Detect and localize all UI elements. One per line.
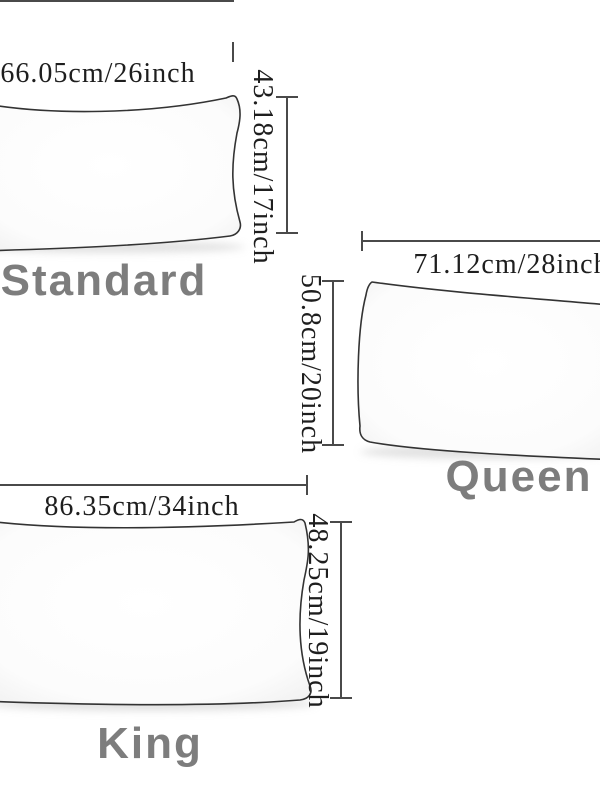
king-size-label: King: [97, 719, 203, 769]
standard-height-line-top-tick: [276, 96, 298, 98]
standard-width-line: [0, 0, 234, 2]
pillow-size-chart: 66.05cm/26inch 43.18cm/17inch Standard 7…: [0, 0, 600, 800]
queen-pillow-shape: [358, 282, 600, 460]
king-height-line-top-tick: [330, 521, 352, 523]
queen-width-line-start-tick: [361, 231, 363, 251]
standard-height-text: 43.18cm/17inch: [246, 69, 278, 264]
king-height-text: 48.25cm/19inch: [301, 513, 333, 708]
standard-height-line: [286, 97, 288, 234]
standard-width-text: 66.05cm/26inch: [0, 58, 195, 90]
queen-width-text: 71.12cm/28inch: [413, 249, 600, 281]
king-height-line: [340, 522, 342, 699]
king-height-line-bottom-tick: [330, 697, 352, 699]
queen-width-line: [362, 240, 600, 242]
standard-pillow-shape: [0, 96, 240, 251]
queen-height-text: 50.8cm/20inch: [294, 274, 326, 454]
standard-size-label: Standard: [1, 256, 208, 306]
standard-height-line-bottom-tick: [276, 232, 298, 234]
standard-width-line-end-tick: [232, 42, 234, 62]
king-width-line: [0, 484, 308, 486]
king-pillow-shape: [0, 520, 311, 705]
queen-height-line: [332, 281, 334, 446]
king-width-line-end-tick: [306, 475, 308, 495]
king-width-text: 86.35cm/34inch: [44, 491, 239, 523]
queen-size-label: Queen: [446, 452, 593, 502]
